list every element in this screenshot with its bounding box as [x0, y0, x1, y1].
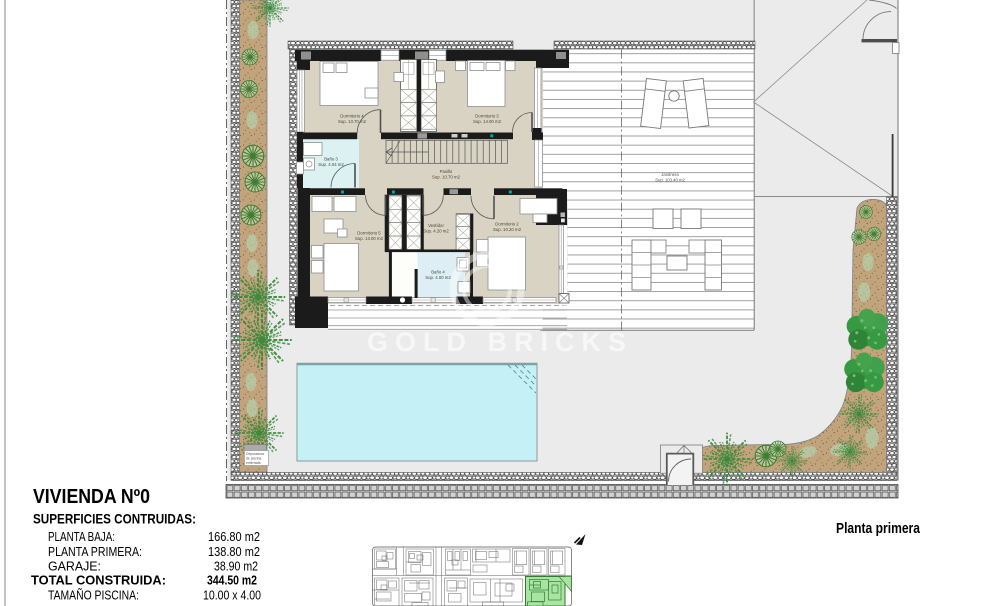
svg-text:SUPERFICIES CONTRUIDAS:: SUPERFICIES CONTRUIDAS:: [33, 511, 196, 527]
svg-text:TOTAL CONSTRUIDA:: TOTAL CONSTRUIDA:: [31, 573, 166, 588]
svg-text:38.90 m2: 38.90 m2: [214, 559, 258, 574]
svg-text:Dormitorio 3: Dormitorio 3: [475, 114, 499, 119]
svg-text:GARAJE:: GARAJE:: [48, 559, 101, 574]
svg-text:Sup. 13.00 m2: Sup. 13.00 m2: [355, 236, 384, 241]
svg-text:Sup. 14.00 m2: Sup. 14.00 m2: [473, 119, 502, 124]
svg-text:Depuradora: Depuradora: [246, 452, 264, 456]
svg-text:Dormitorio 2: Dormitorio 2: [495, 222, 519, 227]
svg-text:Sup. 13.70 m2: Sup. 13.70 m2: [338, 119, 367, 124]
svg-text:Sup. 10.70 m2: Sup. 10.70 m2: [432, 175, 461, 180]
svg-text:PLANTA BAJA:: PLANTA BAJA:: [48, 529, 115, 544]
svg-text:Sup. 103.40 m2: Sup. 103.40 m2: [655, 178, 685, 183]
svg-text:VIVIENDA Nº0: VIVIENDA Nº0: [33, 486, 150, 508]
svg-text:Sup. 4.20 m2: Sup. 4.20 m2: [423, 229, 449, 234]
svg-text:Baño 4: Baño 4: [431, 270, 445, 275]
svg-text:344.50 m2: 344.50 m2: [207, 573, 257, 588]
svg-text:Baño 3: Baño 3: [324, 157, 338, 162]
svg-text:Sup. 4.04 m2: Sup. 4.04 m2: [318, 162, 344, 167]
svg-text:Dormitorio 4: Dormitorio 4: [340, 114, 364, 119]
svg-text:166.80 m2: 166.80 m2: [208, 529, 260, 544]
svg-text:Vestídor: Vestídor: [428, 223, 444, 228]
svg-text:Dormitorio 5: Dormitorio 5: [357, 231, 381, 236]
svg-text:Sup. 10.20 m2: Sup. 10.20 m2: [493, 227, 522, 232]
svg-text:Planta primera: Planta primera: [836, 521, 921, 537]
svg-text:138.80 m2: 138.80 m2: [208, 544, 260, 559]
svg-text:enterrada: enterrada: [246, 461, 261, 465]
svg-text:10.00 x 4.00: 10.00 x 4.00: [203, 588, 261, 603]
svg-text:Pasillo: Pasillo: [440, 169, 453, 174]
svg-text:TAMAÑO PISCINA:: TAMAÑO PISCINA:: [48, 588, 139, 603]
svg-text:Sup. 4.00 m2: Sup. 4.00 m2: [425, 275, 451, 280]
svg-text:de piscina: de piscina: [246, 456, 261, 460]
svg-text:Jardinera: Jardinera: [661, 172, 679, 177]
svg-text:GOLD BRICKS: GOLD BRICKS: [367, 327, 633, 357]
svg-text:PLANTA PRIMERA:: PLANTA PRIMERA:: [48, 544, 142, 559]
